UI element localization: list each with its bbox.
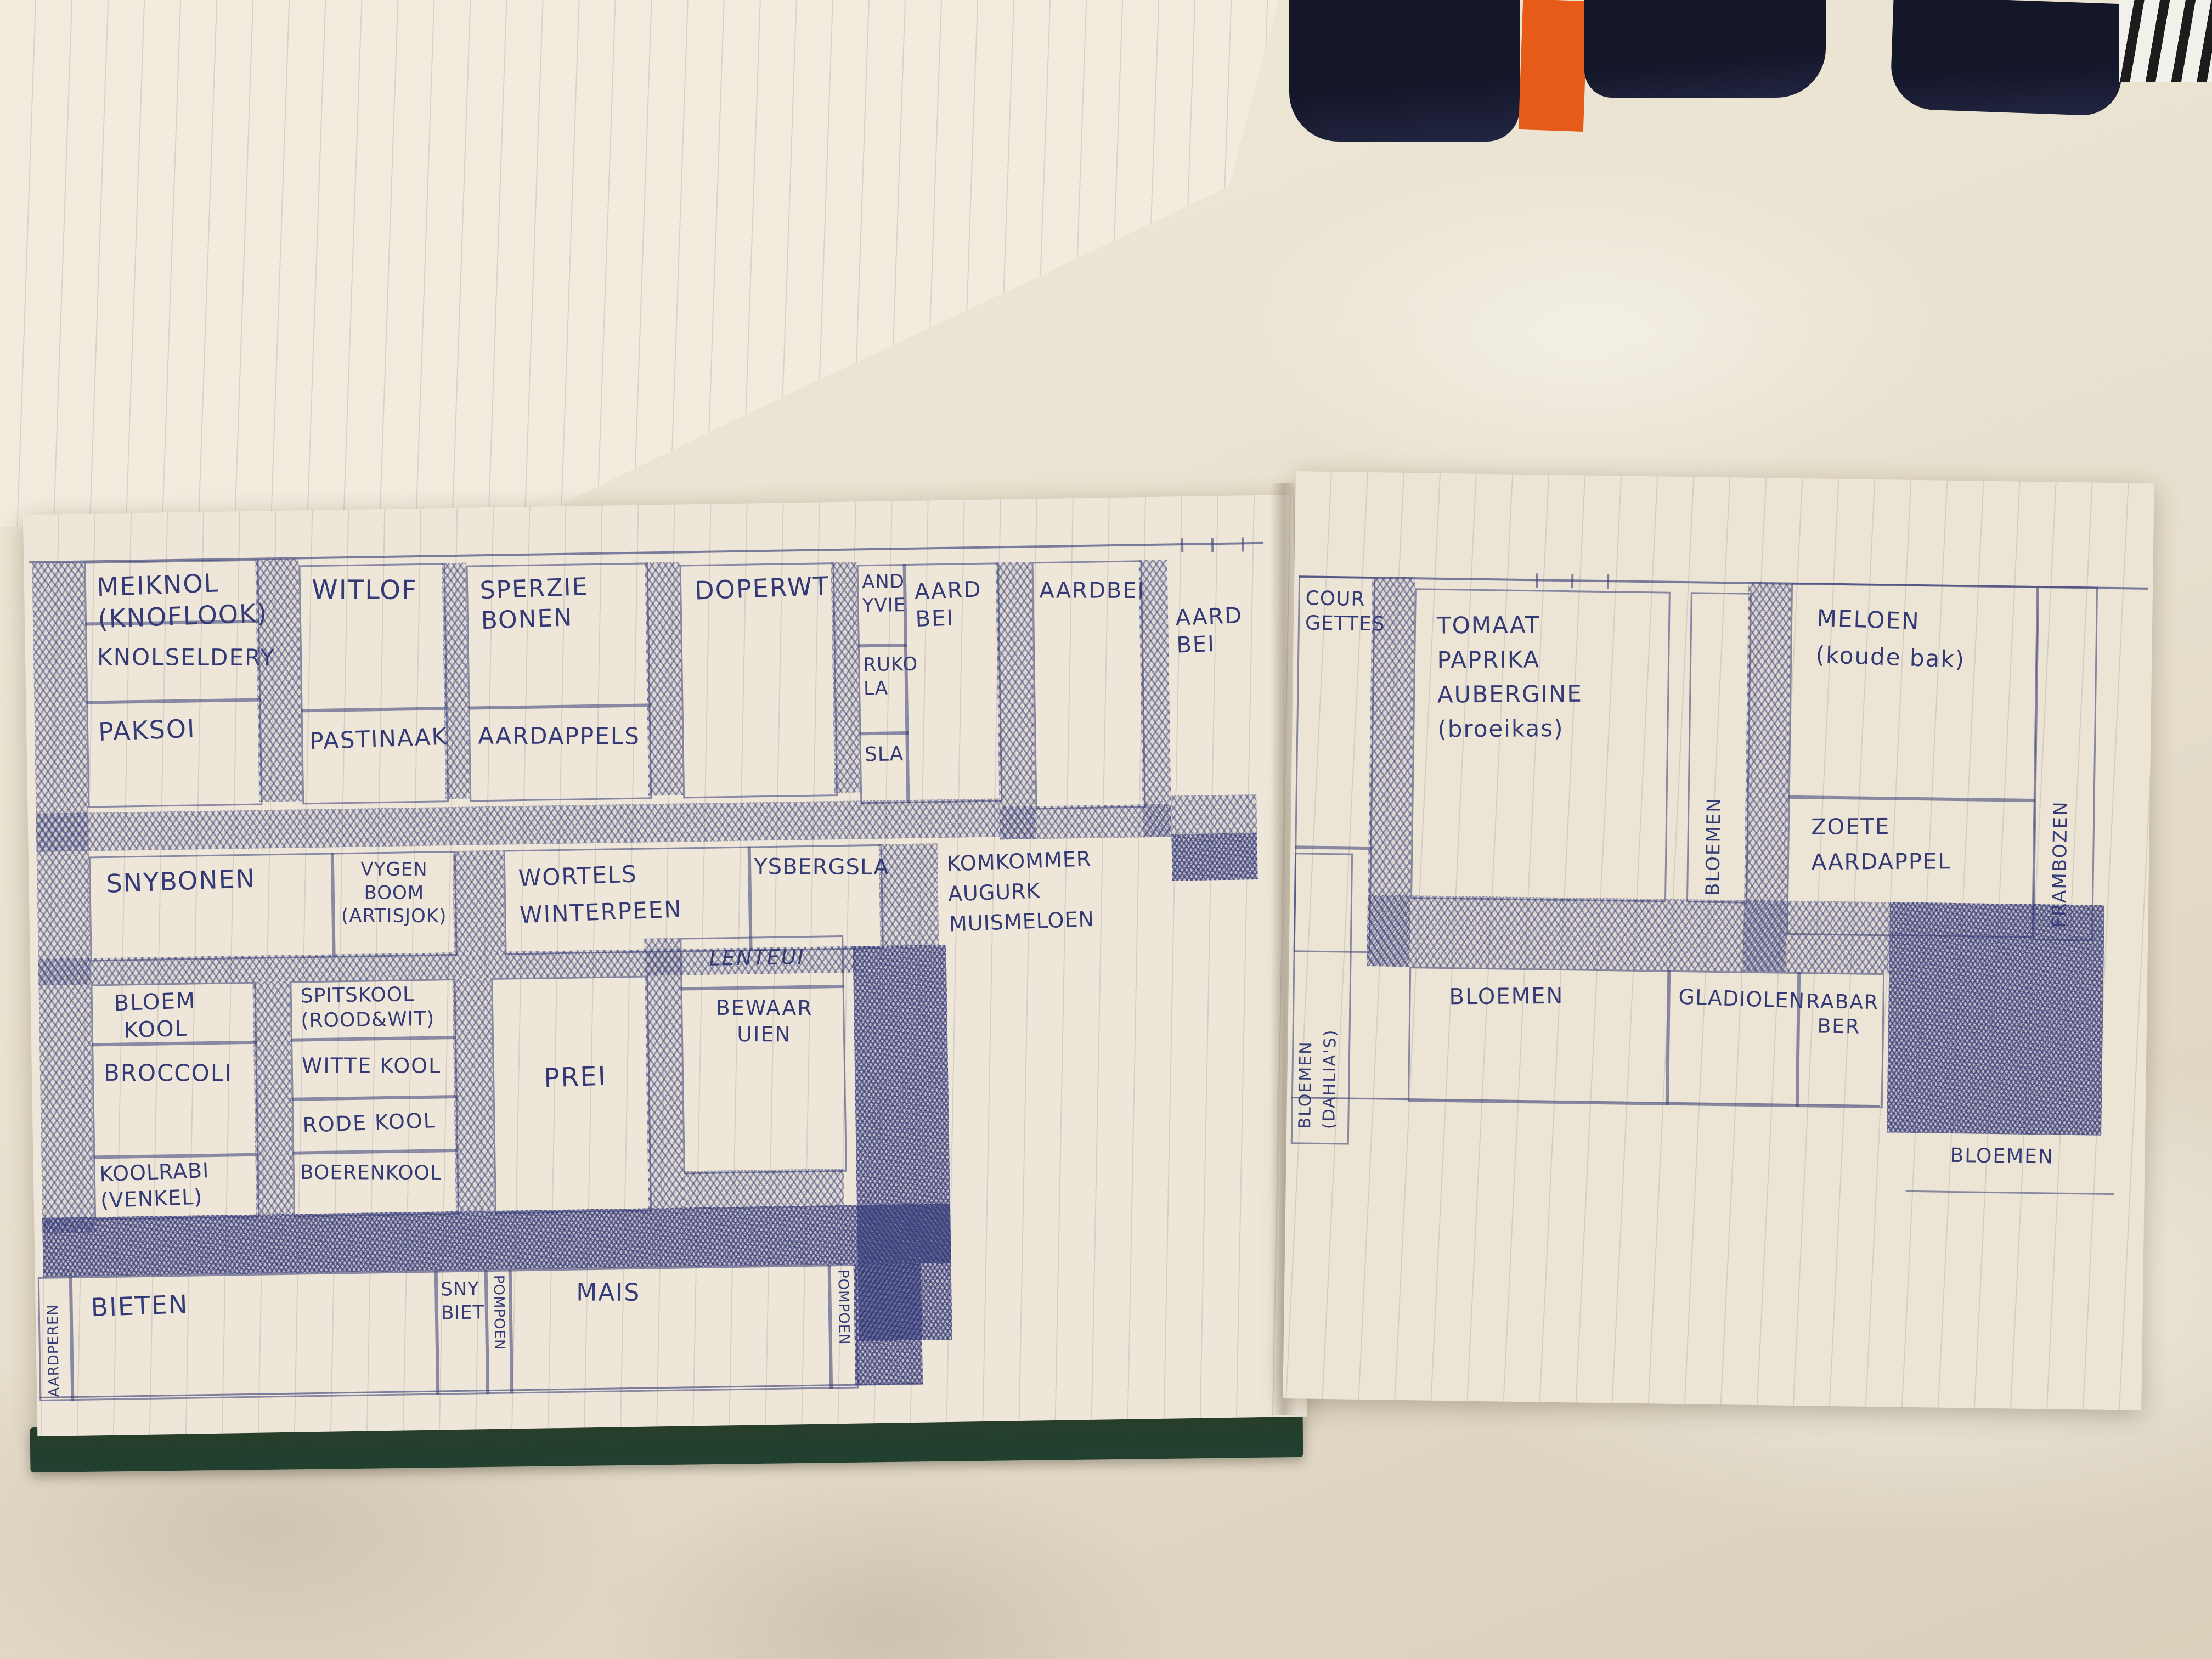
plot-ijsbergsla-label: YSBERGSLA <box>754 853 889 881</box>
garden-path <box>442 563 470 799</box>
plot-pastinaak: PASTINAAK <box>301 707 449 804</box>
garden-path <box>831 562 860 793</box>
plot-witlof: WITLOF <box>298 563 447 712</box>
plot-bloemkool-label: BLOEM KOOL <box>105 986 206 1045</box>
plot-aardappels: AARDAPPELS <box>469 703 652 802</box>
plot-bloemen-dahlias: BLOEMEN (DAHLIA'S) <box>1291 853 1353 1144</box>
plot-pompoen-links-label: POMPOEN <box>489 1275 509 1391</box>
plot-frambozen: FRAMBOZEN <box>2033 586 2098 941</box>
plot-knolselderij-label: KNOLSELDERY <box>97 643 275 673</box>
plot-paksoi-label: PAKSOI <box>98 713 196 748</box>
garden-path <box>854 1263 923 1385</box>
plot-bloemen-rechtsonder-label: BLOEMEN <box>1950 1143 2054 1170</box>
garden-path <box>644 938 684 1209</box>
plot-aardappels-label: AARDAPPELS <box>478 721 640 751</box>
plot-spitskool-label: SPITSKOOL (ROOD&WIT) <box>300 982 435 1034</box>
plot-rucola: RUKO LA <box>858 644 909 735</box>
garden-path <box>996 562 1036 839</box>
tick-mark <box>1607 574 1609 589</box>
plot-paksoi: PAKSOI <box>86 698 262 808</box>
bed-scene-photo: „9869 „4562 MEIKNOL (KNOFLOOK) KNOLSELDE… <box>0 0 2212 1659</box>
dark-fabric-left <box>1289 0 1520 142</box>
garden-path <box>452 978 495 1211</box>
plot-snijbiet-label: SNY BIET <box>441 1277 485 1324</box>
dark-fabric-mid <box>1584 0 1826 98</box>
plot-snijbonen-label: SNYBONEN <box>106 863 256 900</box>
plot-prei: PREI <box>491 975 652 1214</box>
hatched-plot-block <box>1887 902 2104 1135</box>
garden-path <box>1367 895 1890 973</box>
tick-mark <box>1571 574 1573 588</box>
garden-path <box>453 850 505 952</box>
plot-aardbei-2: AARDBEI <box>1032 560 1146 809</box>
plot-prei-label: PREI <box>543 1060 607 1095</box>
plot-aardbei-1-label: AARD BEI <box>914 576 983 633</box>
garden-path <box>684 1169 844 1210</box>
tick-mark <box>1181 538 1183 552</box>
plot-andijvie-label: AND YVIE <box>862 570 906 617</box>
plot-komkommer-label: KOMKOMMER AUGURK MUISMELOEN <box>946 844 1095 940</box>
garden-path <box>252 981 294 1215</box>
tick-mark <box>1536 573 1538 588</box>
plot-bloemen-dahlias-label-1: BLOEMEN <box>1295 887 1319 1128</box>
plot-tomaat-kas-label: TOMAAT PAPRIKA AUBERGINE (broeikas) <box>1437 607 1583 747</box>
plot-boerenkool: BOERENKOOL <box>292 1149 459 1217</box>
plot-rabarber-label: RABAR BER <box>1806 989 1872 1040</box>
plot-bieten-label: BIETEN <box>91 1289 189 1324</box>
plot-aardbei-3-label: AARD BEI <box>1175 602 1244 659</box>
plot-sperziebonen: SPERZIE BONEN <box>466 562 650 709</box>
plot-mais-label: MAIS <box>576 1277 640 1307</box>
plot-witlof-label: WITLOF <box>312 573 418 607</box>
plot-bloemen-onder-label: BLOEMEN <box>1449 983 1564 1011</box>
faint-rotated-note-1: „9869 <box>1119 55 1148 318</box>
plot-courgettes: COUR GETTES <box>1295 575 1375 850</box>
plot-lenteui-label: LENTEUI <box>709 944 805 972</box>
plot-rodekool-label: RODE KOOL <box>302 1108 437 1138</box>
plot-bloemkool: BLOEM KOOL <box>91 982 257 1047</box>
garden-path <box>255 558 302 802</box>
plot-ijsbergsla: YSBERGSLA <box>748 844 884 951</box>
plot-broccoli: BROCCOLI <box>92 1041 258 1159</box>
tick-mark <box>1211 538 1214 552</box>
plot-komkommer: KOMKOMMER AUGURK MUISMELOEN <box>938 839 1173 945</box>
tick-mark <box>1242 537 1244 551</box>
plot-frambozen-label: FRAMBOZEN <box>2047 686 2074 928</box>
plot-knolselderij: KNOLSELDERY <box>85 620 261 704</box>
plot-bewaaruien: BEWAAR UIEN <box>681 985 847 1175</box>
plot-sperziebonen-label: SPERZIE BONEN <box>479 572 590 636</box>
plot-bloemen-onder: BLOEMEN <box>1408 967 1671 1105</box>
plot-snijbonen: SNYBONEN <box>89 853 336 961</box>
plot-aardperen-label: AARDPEREN <box>44 1282 64 1397</box>
plot-koolrabi: KOOLRABI (VENKEL) <box>93 1153 259 1221</box>
plot-meloen: MELOEN (koude bak) <box>1788 583 2038 802</box>
plot-wittekool-label: WITTE KOOL <box>302 1053 442 1079</box>
plot-bieten: BIETEN <box>69 1271 439 1401</box>
plot-snijbiet: SNY BIET <box>435 1270 490 1395</box>
plot-boerenkool-label: BOERENKOOL <box>300 1160 442 1186</box>
plot-bewaaruien-label: BEWAAR UIEN <box>715 995 812 1048</box>
garden-path <box>1000 804 1172 839</box>
plot-broccoli-label: BROCCOLI <box>104 1059 233 1088</box>
garden-path <box>645 562 683 796</box>
garden-path <box>36 798 1000 852</box>
garden-path <box>1171 794 1257 834</box>
plot-bloemen-strook: BLOEMEN <box>1686 592 1752 903</box>
orange-strap <box>1519 0 1588 132</box>
plot-aardbei-1: AARD BEI <box>903 562 1003 803</box>
plot-bloemen-rechtsonder: BLOEMEN <box>1906 1133 2115 1195</box>
plot-aardbei-3: AARD BEI <box>1167 558 1256 795</box>
left-plan-page: MEIKNOL (KNOFLOOK) KNOLSELDERY PAKSOI WI… <box>23 495 1307 1436</box>
striped-fabric-corner <box>2119 0 2212 82</box>
plot-rabarber: RABAR BER <box>1796 972 1884 1108</box>
plot-meloen-label: MELOEN (koude bak) <box>1815 600 1967 678</box>
plot-zoete-aardappel-label: ZOETE AARDAPPEL <box>1811 809 1951 880</box>
plot-gladiolen: GLADIOLEN <box>1666 970 1801 1107</box>
plot-bloemen-dahlias-label-2: (DAHLIA'S) <box>1319 871 1343 1129</box>
plot-bloemen-strook-label: BLOEMEN <box>1701 676 1728 896</box>
dark-fabric-right <box>1890 0 2124 116</box>
plot-andijvie: AND YVIE <box>857 564 907 647</box>
garden-path <box>1171 833 1257 881</box>
plot-wortels-label: WORTELS WINTERPEEN <box>518 854 683 933</box>
plot-pastinaak-label: PASTINAAK <box>309 723 448 757</box>
garden-path <box>879 843 939 946</box>
plot-meiknol: MEIKNOL (KNOFLOOK) <box>84 560 259 626</box>
plot-doperwt: DOPERWT <box>680 562 838 798</box>
plot-sla: SLA <box>859 731 910 804</box>
right-plan-page: COUR GETTES TOMAAT PAPRIKA AUBERGINE (br… <box>1283 471 2154 1410</box>
plot-vijgenboom: VYGEN BOOM (ARTISJOK) <box>331 851 458 958</box>
plot-doperwt-label: DOPERWT <box>694 571 830 607</box>
garden-path <box>1139 560 1172 838</box>
upper-notebook-page: „9869 „4562 <box>0 0 1284 529</box>
plot-koolrabi-label: KOOLRABI (VENKEL) <box>99 1158 211 1214</box>
plot-sla-label: SLA <box>865 742 904 767</box>
plot-lenteui: LENTEUI <box>680 935 844 991</box>
plot-rodekool: RODE KOOL <box>292 1095 459 1155</box>
plot-spitskool: SPITSKOOL (ROOD&WIT) <box>290 979 456 1042</box>
plot-pompoen-rechts-label: POMPOEN <box>834 1269 854 1386</box>
plot-vijgenboom-label: VYGEN BOOM (ARTISJOK) <box>341 857 448 928</box>
plot-wittekool: WITTE KOOL <box>291 1036 458 1101</box>
faint-rotated-note-2: „4562 <box>1128 208 1157 439</box>
plot-gladiolen-label: GLADIOLEN <box>1678 984 1805 1014</box>
plot-tomaat-kas: TOMAAT PAPRIKA AUBERGINE (broeikas) <box>1410 588 1671 902</box>
plot-mais: MAIS <box>509 1265 833 1393</box>
plot-aardbei-2-label: AARDBEI <box>1039 577 1145 605</box>
